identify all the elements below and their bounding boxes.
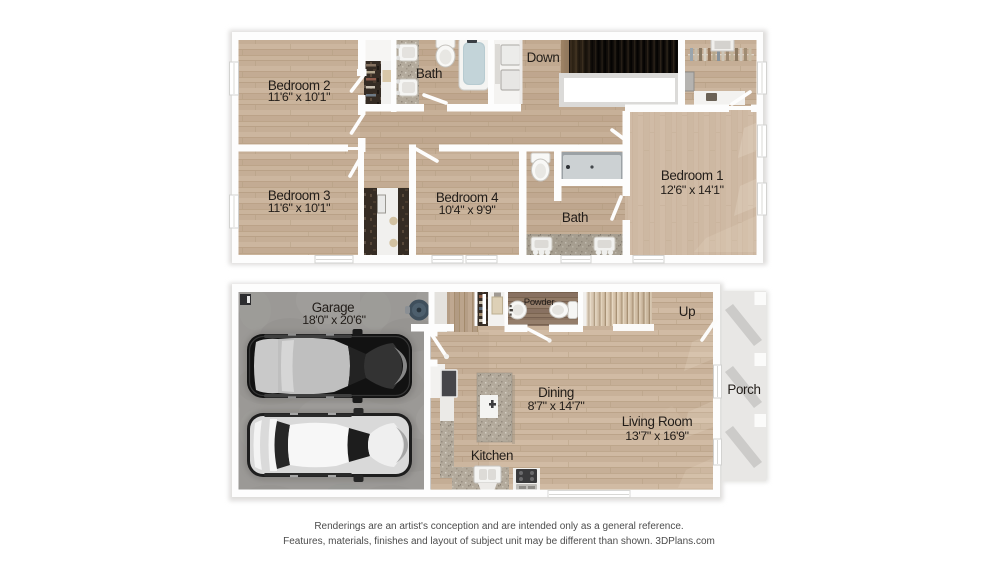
svg-text:10'4" x 9'9": 10'4" x 9'9" (439, 203, 496, 217)
svg-text:Bath: Bath (416, 66, 442, 81)
svg-text:Powder: Powder (524, 297, 555, 308)
svg-text:Porch: Porch (727, 382, 760, 397)
svg-text:Down: Down (527, 50, 560, 65)
svg-text:11'6" x 10'1": 11'6" x 10'1" (268, 90, 331, 104)
svg-text:12'6" x 14'1": 12'6" x 14'1" (660, 183, 723, 197)
svg-text:11'6" x 10'1": 11'6" x 10'1" (268, 201, 331, 215)
svg-text:8'7" x 14'7": 8'7" x 14'7" (528, 399, 585, 413)
svg-text:Dining: Dining (538, 385, 574, 400)
svg-text:Features, materials, finishes: Features, materials, finishes and layout… (283, 536, 715, 547)
svg-text:Living Room: Living Room (622, 414, 693, 429)
svg-text:Bedroom 1: Bedroom 1 (661, 168, 723, 183)
svg-text:Bath: Bath (562, 210, 588, 225)
svg-text:13'7" x 16'9": 13'7" x 16'9" (625, 429, 688, 443)
svg-text:18'0" x 20'6": 18'0" x 20'6" (302, 313, 365, 327)
svg-text:Renderings are an artist's con: Renderings are an artist's conception an… (314, 521, 683, 532)
svg-text:Up: Up (679, 304, 695, 319)
svg-text:Kitchen: Kitchen (471, 448, 513, 463)
